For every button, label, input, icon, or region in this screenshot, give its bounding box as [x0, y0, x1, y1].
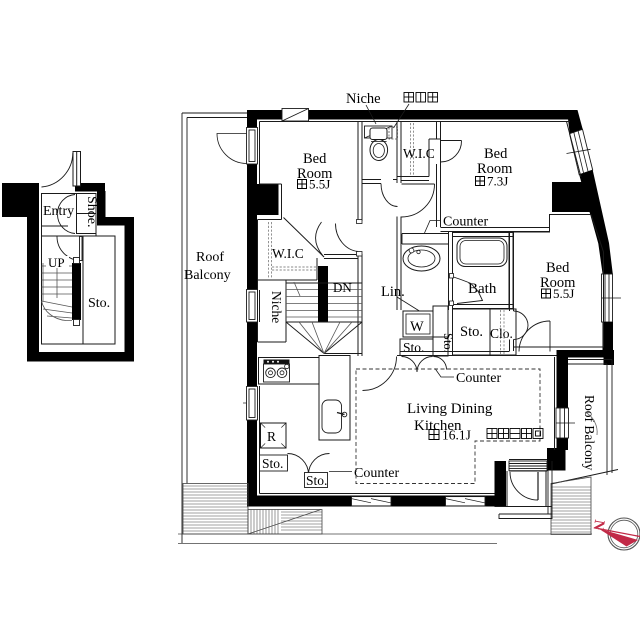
svg-text:Bed: Bed [484, 146, 508, 162]
svg-text:7.3J: 7.3J [487, 174, 508, 189]
svg-text:Counter: Counter [443, 215, 488, 230]
svg-text:Bath: Bath [468, 281, 497, 297]
svg-text:Roof: Roof [196, 250, 224, 265]
svg-text:Counter: Counter [456, 371, 501, 386]
svg-text:5.5J: 5.5J [553, 286, 574, 301]
svg-text:Roof Balcony: Roof Balcony [582, 395, 597, 471]
svg-text:Sto.: Sto. [262, 456, 283, 471]
svg-text:Sto.: Sto. [403, 340, 424, 355]
svg-text:Niche: Niche [269, 291, 284, 323]
svg-text:Sto.: Sto. [306, 473, 327, 488]
svg-text:16.1J: 16.1J [442, 428, 471, 443]
svg-text:DN: DN [333, 280, 352, 295]
svg-text:Bed: Bed [303, 151, 327, 167]
svg-text:Balcony: Balcony [184, 268, 231, 283]
svg-text:R: R [267, 429, 276, 444]
svg-text:5.5J: 5.5J [309, 177, 330, 192]
svg-text:Sto.: Sto. [88, 296, 110, 311]
svg-text:Lin.: Lin. [381, 284, 405, 300]
svg-text:W.I.C: W.I.C [272, 246, 304, 261]
svg-text:Living Dining: Living Dining [407, 401, 493, 417]
svg-text:Clo.: Clo. [490, 326, 513, 341]
svg-text:UP: UP [48, 255, 65, 270]
svg-text:Shoe.: Shoe. [84, 196, 99, 228]
svg-text:W.I.C: W.I.C [403, 146, 435, 161]
svg-text:W: W [410, 319, 424, 335]
svg-text:Niche: Niche [346, 91, 381, 107]
svg-text:Bed: Bed [546, 260, 570, 276]
svg-text:Sto.: Sto. [460, 324, 483, 340]
svg-text:Counter: Counter [354, 466, 399, 481]
